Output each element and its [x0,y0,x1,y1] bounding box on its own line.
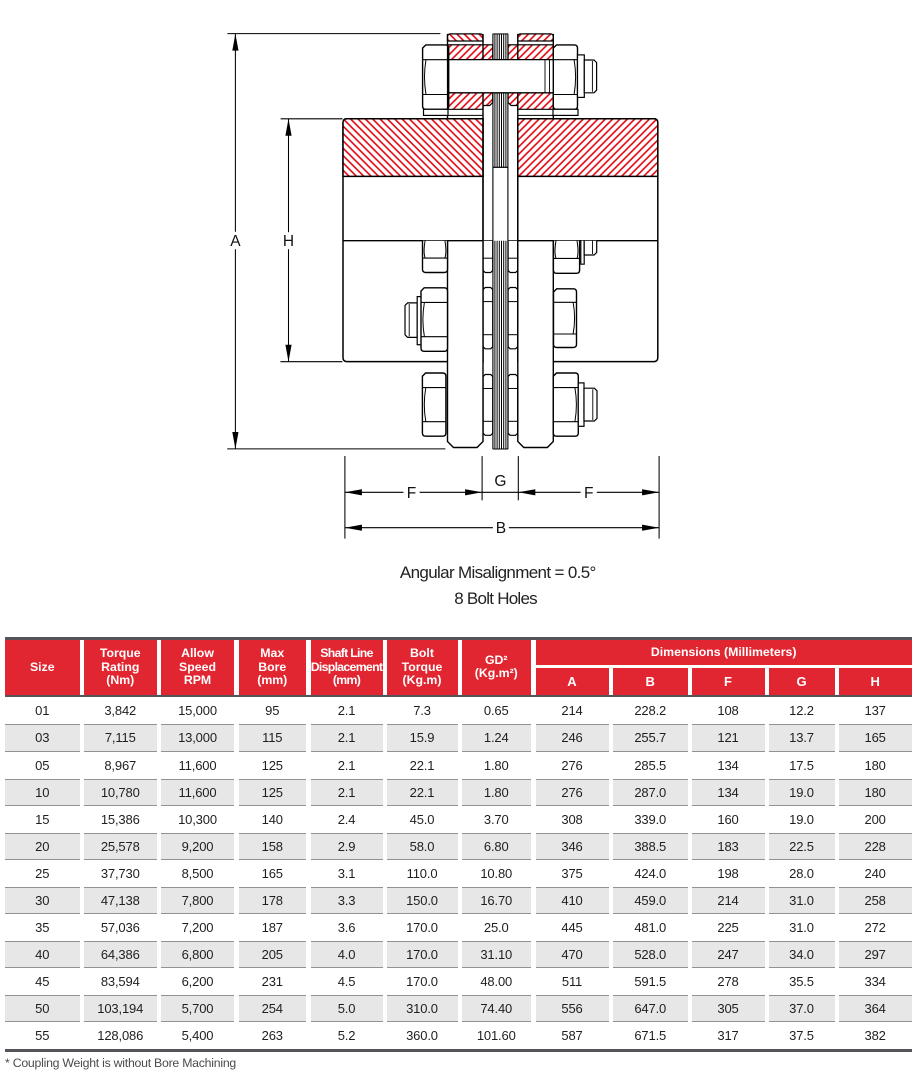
svg-text:G: G [494,473,506,490]
svg-text:B: B [496,520,506,537]
svg-text:A: A [230,233,241,250]
svg-text:F: F [584,485,593,502]
svg-text:F: F [407,485,416,502]
svg-text:H: H [283,233,294,250]
